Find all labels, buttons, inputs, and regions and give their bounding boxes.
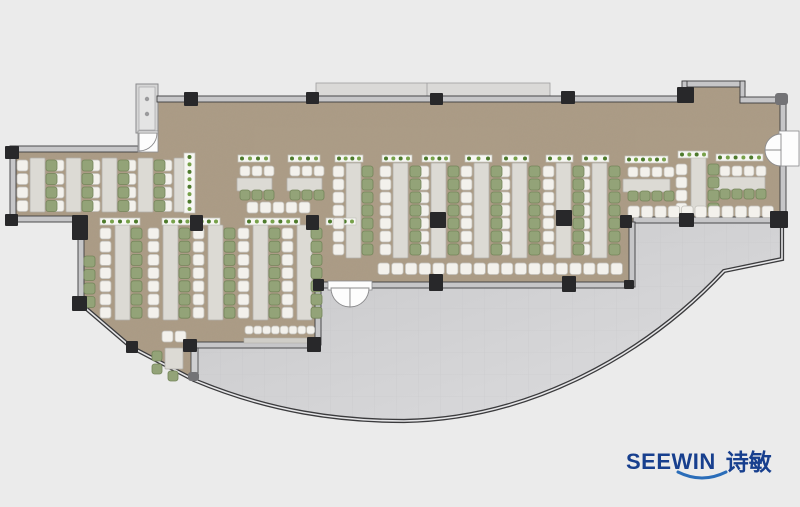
brand-logo-wordmark: SEEWIN <box>626 451 716 473</box>
chair-green <box>529 205 540 216</box>
chair-white <box>735 206 747 218</box>
shaft-knob <box>145 97 149 101</box>
chair-green <box>82 174 93 185</box>
plant <box>486 157 490 161</box>
chair-green <box>118 174 129 185</box>
chair-green <box>311 307 322 318</box>
plant <box>648 158 652 162</box>
chair-white <box>148 268 159 279</box>
plant <box>188 192 192 196</box>
chair-green <box>269 281 280 292</box>
desk-table <box>115 225 130 320</box>
desk-table <box>253 225 268 320</box>
chair-green <box>448 192 459 203</box>
plant <box>702 153 706 157</box>
structural-column <box>306 215 319 230</box>
chair-green <box>224 307 235 318</box>
chair-green <box>491 244 502 255</box>
chair-green <box>179 281 190 292</box>
chair-white <box>238 268 249 279</box>
chair-white <box>17 160 28 171</box>
chair-white <box>419 263 431 275</box>
chair-green <box>744 189 754 199</box>
plant <box>399 157 403 161</box>
desk-table <box>592 163 607 258</box>
chair-green <box>573 192 584 203</box>
floor-plan-drawing <box>0 0 800 507</box>
desk-table <box>474 163 489 258</box>
chair-white <box>378 263 390 275</box>
chair-green <box>224 281 235 292</box>
desk-table <box>30 158 45 212</box>
plant <box>188 162 192 166</box>
chair-green <box>640 191 650 201</box>
chair-white <box>405 263 417 275</box>
chair-white <box>193 268 204 279</box>
chair-white <box>543 218 554 229</box>
wall <box>10 216 76 222</box>
chair-white <box>749 206 761 218</box>
chair-green <box>154 174 165 185</box>
chair-white <box>17 201 28 212</box>
chair-green <box>179 307 190 318</box>
chair-white <box>461 179 472 190</box>
desk-table <box>208 225 223 320</box>
plant <box>467 157 471 161</box>
plant <box>680 153 684 157</box>
structural-column <box>624 280 634 289</box>
chair-green <box>118 201 129 212</box>
chair-green <box>311 254 322 265</box>
plant <box>641 158 645 162</box>
chair-green <box>82 187 93 198</box>
chair-green <box>118 160 129 171</box>
planter-box <box>625 156 668 163</box>
chair-white <box>461 244 472 255</box>
chair-green <box>269 268 280 279</box>
plant <box>188 155 192 159</box>
structural-column <box>126 341 138 353</box>
structural-column <box>72 215 88 240</box>
desk-table <box>287 178 322 191</box>
bar-counter <box>244 338 314 343</box>
chair-white <box>333 192 344 203</box>
chair-green <box>362 218 373 229</box>
chair-green <box>410 179 421 190</box>
chair-green <box>573 218 584 229</box>
plant <box>634 158 638 162</box>
chair-green <box>179 241 190 252</box>
wall-node <box>775 93 788 105</box>
plant <box>207 220 211 224</box>
door-opening <box>779 131 799 166</box>
chair-green <box>491 218 502 229</box>
desk-table <box>237 178 272 191</box>
chair-white <box>333 205 344 216</box>
chair-white <box>695 206 707 218</box>
plant <box>437 157 441 161</box>
structural-column <box>429 274 443 291</box>
structural-column <box>190 215 203 231</box>
chair-white <box>628 167 638 177</box>
plant <box>306 157 310 161</box>
chair-white <box>664 167 674 177</box>
chair-white <box>193 254 204 265</box>
plant <box>523 157 527 161</box>
plant <box>662 158 666 162</box>
brand-logo: SEEWIN 诗敏 <box>626 451 772 474</box>
chair-white <box>162 331 173 342</box>
chair-green <box>448 231 459 242</box>
structural-column <box>183 339 197 352</box>
chair-green <box>154 187 165 198</box>
chair-green <box>46 174 57 185</box>
chair-white <box>722 206 734 218</box>
desk-table <box>393 163 408 258</box>
chair-green <box>269 294 280 305</box>
plant <box>504 157 508 161</box>
chair-white <box>461 231 472 242</box>
chair-white <box>282 307 293 318</box>
plant <box>384 157 388 161</box>
wall <box>684 81 745 87</box>
chair-white <box>238 294 249 305</box>
chair-green <box>448 166 459 177</box>
chair-green <box>179 254 190 265</box>
structural-column <box>5 214 18 226</box>
shaft-knob <box>145 112 149 116</box>
chair-white <box>744 166 754 176</box>
structural-column <box>307 337 321 352</box>
chair-green <box>362 166 373 177</box>
chair-white <box>641 206 653 218</box>
plant <box>248 157 252 161</box>
wall <box>629 222 635 287</box>
chair-white <box>543 166 554 177</box>
plant <box>256 157 260 161</box>
chair-white <box>380 244 391 255</box>
plant <box>406 157 410 161</box>
plant <box>188 185 192 189</box>
plant <box>726 156 730 160</box>
plant <box>110 220 114 224</box>
chair-white <box>302 166 312 176</box>
desk-table <box>163 225 178 320</box>
chair-white <box>100 294 111 305</box>
chair-white <box>100 241 111 252</box>
plant <box>178 220 182 224</box>
chair-green <box>314 190 324 200</box>
chair-white <box>542 263 554 275</box>
chair-green <box>410 231 421 242</box>
chair-white <box>392 263 404 275</box>
chair-white <box>282 254 293 265</box>
chair-white <box>380 179 391 190</box>
chair-green <box>131 241 142 252</box>
chair-white <box>543 244 554 255</box>
chair-green <box>152 364 162 374</box>
chair-white <box>676 177 687 188</box>
chair-white <box>461 166 472 177</box>
chair-green <box>410 218 421 229</box>
chair-white <box>298 326 306 334</box>
chair-white <box>273 202 284 213</box>
structural-column <box>72 296 87 311</box>
desk-table <box>102 158 117 212</box>
chair-white <box>254 326 262 334</box>
desk-table <box>623 179 670 192</box>
chair-white <box>708 206 720 218</box>
plant <box>741 156 745 160</box>
chair-white <box>461 205 472 216</box>
chair-green <box>46 187 57 198</box>
plant <box>431 157 435 161</box>
chair-green <box>609 218 620 229</box>
chair-white <box>282 294 293 305</box>
brand-logo-text-zh: 诗敏 <box>726 451 772 474</box>
chair-white <box>148 281 159 292</box>
chair-white <box>193 281 204 292</box>
chair-green <box>269 254 280 265</box>
plant <box>558 157 562 161</box>
chair-green <box>448 205 459 216</box>
desk-table <box>66 158 81 212</box>
chair-green <box>491 192 502 203</box>
chair-white <box>640 167 650 177</box>
chair-white <box>307 326 315 334</box>
chair-white <box>17 187 28 198</box>
plant <box>757 156 761 160</box>
chair-white <box>280 326 288 334</box>
plant <box>514 157 518 161</box>
chair-white <box>193 294 204 305</box>
plant <box>350 220 354 224</box>
plant <box>627 158 631 162</box>
chair-white <box>100 281 111 292</box>
plant <box>164 220 168 224</box>
chair-white <box>461 218 472 229</box>
chair-green <box>491 166 502 177</box>
chair-green <box>131 228 142 239</box>
plant <box>734 156 738 160</box>
chair-green <box>168 371 178 381</box>
chair-white <box>460 263 472 275</box>
chair-white <box>289 326 297 334</box>
chair-white <box>333 179 344 190</box>
chair-green <box>410 166 421 177</box>
chair-white <box>260 202 271 213</box>
chair-white <box>433 263 445 275</box>
chair-green <box>410 205 421 216</box>
chair-green <box>756 189 766 199</box>
plant <box>264 157 268 161</box>
plant <box>255 220 259 224</box>
chair-green <box>131 294 142 305</box>
plant <box>357 157 361 161</box>
plant <box>695 153 699 157</box>
chair-white <box>148 228 159 239</box>
chair-green <box>362 192 373 203</box>
plant <box>171 220 175 224</box>
chair-green <box>224 294 235 305</box>
wall <box>780 101 786 135</box>
chair-white <box>148 254 159 265</box>
chair-white <box>247 202 258 213</box>
chair-white <box>447 263 459 275</box>
chair-green <box>652 191 662 201</box>
plant <box>188 170 192 174</box>
chair-white <box>290 166 300 176</box>
chair-green <box>311 241 322 252</box>
chair-green <box>732 189 742 199</box>
chair-white <box>100 268 111 279</box>
plant <box>286 220 290 224</box>
chair-white <box>501 263 513 275</box>
chair-green <box>529 218 540 229</box>
chair-white <box>652 167 662 177</box>
chair-green <box>269 307 280 318</box>
chair-white <box>271 326 279 334</box>
structural-column <box>556 210 572 226</box>
plant <box>188 207 192 211</box>
wall <box>78 238 84 300</box>
chair-green <box>131 307 142 318</box>
chair-white <box>668 206 680 218</box>
chair-green <box>252 190 262 200</box>
plant <box>188 177 192 181</box>
chair-green <box>179 228 190 239</box>
chair-green <box>609 192 620 203</box>
chair-white <box>100 228 111 239</box>
chair-white <box>515 263 527 275</box>
chair-green <box>573 244 584 255</box>
plant <box>214 220 218 224</box>
chair-green <box>448 244 459 255</box>
wall <box>157 96 686 102</box>
structural-column <box>313 279 324 291</box>
chair-green <box>362 244 373 255</box>
chair-white <box>333 244 344 255</box>
chair-green <box>609 166 620 177</box>
chair-green <box>46 201 57 212</box>
chair-green <box>708 177 719 188</box>
chair-white <box>148 294 159 305</box>
chair-white <box>17 174 28 185</box>
chair-green <box>224 241 235 252</box>
plant <box>350 157 354 161</box>
chair-white <box>282 268 293 279</box>
chair-white <box>529 263 541 275</box>
plant <box>548 157 552 161</box>
plant <box>718 156 722 160</box>
chair-white <box>756 166 766 176</box>
chair-green <box>573 166 584 177</box>
chair-white <box>676 164 687 175</box>
plant <box>567 157 571 161</box>
chair-green <box>529 166 540 177</box>
plant <box>263 220 267 224</box>
chair-white <box>263 326 271 334</box>
chair-green <box>179 268 190 279</box>
chair-white <box>543 192 554 203</box>
desk-table <box>512 163 527 258</box>
chair-green <box>609 231 620 242</box>
plant <box>271 220 275 224</box>
chair-green <box>573 179 584 190</box>
chair-white <box>380 166 391 177</box>
chair-green <box>410 192 421 203</box>
chair-green <box>609 179 620 190</box>
chair-green <box>46 160 57 171</box>
plant <box>126 220 130 224</box>
chair-white <box>597 263 609 275</box>
chair-green <box>609 244 620 255</box>
chair-white <box>488 263 500 275</box>
chair-white <box>570 263 582 275</box>
brand-logo-swoosh-icon <box>676 471 728 485</box>
chair-green <box>362 179 373 190</box>
chair-green <box>448 218 459 229</box>
chair-green <box>154 201 165 212</box>
chair-white <box>611 263 623 275</box>
desk-table <box>714 177 765 190</box>
desk-table <box>431 163 446 258</box>
chair-green <box>609 205 620 216</box>
chair-green <box>573 205 584 216</box>
chair-white <box>238 254 249 265</box>
chair-white <box>282 241 293 252</box>
chair-green <box>224 254 235 265</box>
plant <box>185 220 189 224</box>
plant <box>188 200 192 204</box>
chair-white <box>474 263 486 275</box>
chair-green <box>311 268 322 279</box>
plant <box>687 153 691 157</box>
chair-white <box>264 166 274 176</box>
chair-green <box>448 179 459 190</box>
chair-white <box>238 281 249 292</box>
chair-green <box>708 190 719 201</box>
structural-column <box>184 92 198 106</box>
chair-white <box>252 166 262 176</box>
chair-green <box>84 256 95 267</box>
chair-white <box>148 241 159 252</box>
chair-white <box>380 192 391 203</box>
plant <box>444 157 448 161</box>
chair-green <box>362 231 373 242</box>
structural-column <box>430 93 443 105</box>
plant <box>477 157 481 161</box>
wall <box>780 163 786 218</box>
chair-green <box>131 254 142 265</box>
wall <box>633 217 786 223</box>
chair-green <box>302 190 312 200</box>
chair-green <box>264 190 274 200</box>
chair-white <box>543 205 554 216</box>
chair-green <box>240 190 250 200</box>
chair-green <box>179 294 190 305</box>
chair-green <box>573 231 584 242</box>
chair-white <box>148 307 159 318</box>
chair-green <box>491 179 502 190</box>
structural-column <box>430 212 446 228</box>
chair-green <box>290 190 300 200</box>
desk-table <box>346 163 361 258</box>
plant <box>391 157 395 161</box>
structural-column <box>770 211 788 228</box>
chair-green <box>708 164 719 175</box>
chair-white <box>543 231 554 242</box>
